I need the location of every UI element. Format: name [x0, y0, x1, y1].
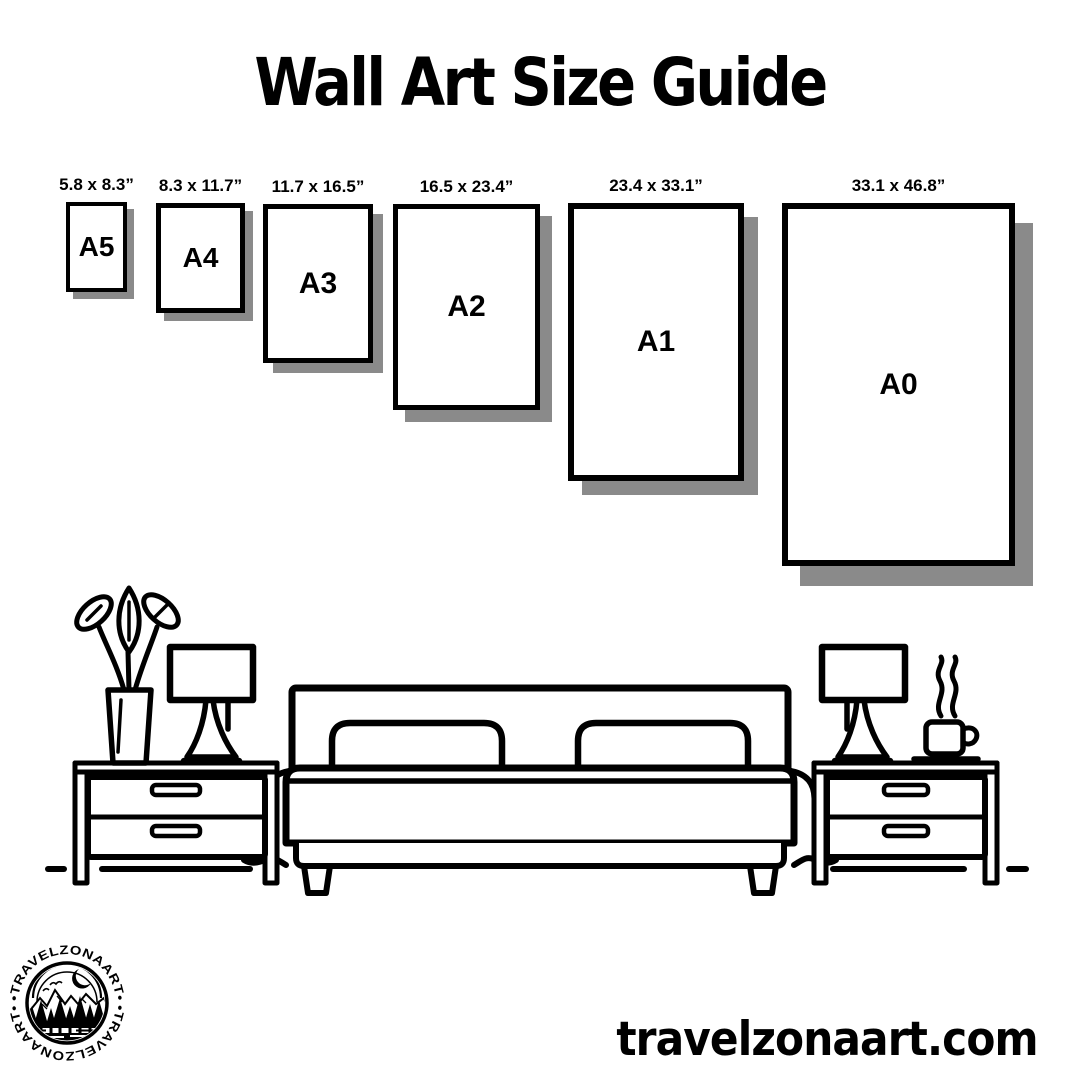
table-lamp-icon: [822, 647, 905, 761]
nightstand-icon: [75, 763, 277, 883]
bird-icon: [43, 989, 49, 991]
table-lamp-icon: [170, 647, 253, 761]
bedroom-scene-illustration: [0, 0, 1080, 1080]
website-url: travelzonaart.com: [616, 1012, 1037, 1067]
steam-icon: [938, 657, 942, 716]
infographic-canvas: Wall Art Size Guide 5.8 x 8.3” A5 8.3 x …: [0, 0, 1080, 1080]
bird-icon: [50, 982, 62, 985]
steam-icon: [952, 657, 956, 716]
nightstand-icon: [814, 763, 997, 883]
brand-logo-badge: •TRAVELZONAART• •TRAVELZONAART•: [6, 936, 128, 1072]
crescent-moon-icon: [72, 969, 91, 989]
coffee-cup-icon: [914, 657, 978, 759]
double-bed-icon: [244, 688, 836, 893]
